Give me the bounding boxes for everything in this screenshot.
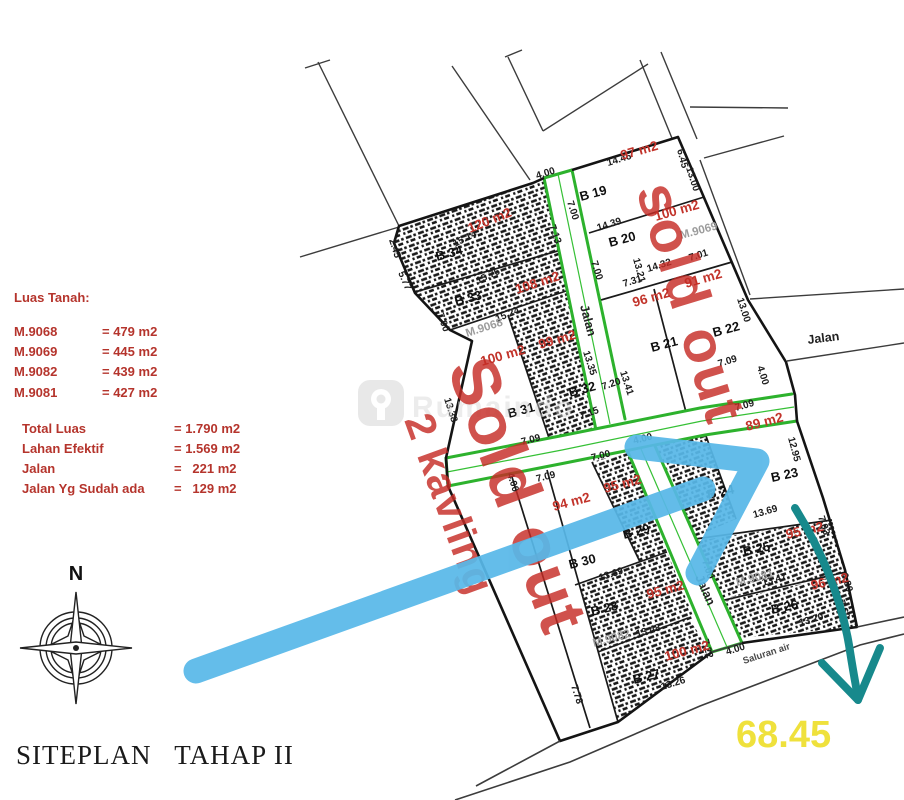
- parcel-area: = 479 m2: [102, 322, 157, 342]
- parcel-id: M.9082: [14, 362, 102, 382]
- legend-row: Lahan Efektif = 1.569 m2: [22, 439, 240, 459]
- compass-north-label: N: [69, 563, 83, 585]
- measurement-text: 68.45: [736, 714, 831, 756]
- legend-row: Jalan Yg Sudah ada = 129 m2: [22, 479, 240, 499]
- parcel-id: M.9069: [14, 342, 102, 362]
- legend-row: M.9069 = 445 m2: [14, 342, 240, 362]
- legend-row: Jalan = 221 m2: [22, 459, 240, 479]
- legend-row: M.9082 = 439 m2: [14, 362, 240, 382]
- parcel-area: = 427 m2: [102, 383, 157, 403]
- legend-row: M.9081 = 427 m2: [14, 383, 240, 403]
- compass-rose: N: [20, 563, 132, 704]
- parcel-id: M.9068: [14, 322, 102, 342]
- road-label-saluran-air: Saluran air: [742, 641, 792, 667]
- summary-value: = 221 m2: [174, 459, 237, 479]
- summary-value: = 1.569 m2: [174, 439, 240, 459]
- legend-heading: Luas Tanah:: [14, 288, 240, 308]
- siteplan-page: 15.14 2.45 5.77 15.76 7.13 7.00 15.24 7.…: [0, 0, 904, 800]
- legend-summary: Total Luas = 1.790 m2 Lahan Efektif = 1.…: [22, 419, 240, 500]
- legend-row: Total Luas = 1.790 m2: [22, 419, 240, 439]
- land-area-legend: Luas Tanah: M.9068 = 479 m2 M.9069 = 445…: [14, 288, 240, 499]
- summary-label: Total Luas: [22, 419, 174, 439]
- parcel-area: = 445 m2: [102, 342, 157, 362]
- legend-row: M.9068 = 479 m2: [14, 322, 240, 342]
- summary-label: Jalan: [22, 459, 174, 479]
- parcel-id: M.9081: [14, 383, 102, 403]
- summary-value: = 1.790 m2: [174, 419, 240, 439]
- parcel-area: = 439 m2: [102, 362, 157, 382]
- summary-value: = 129 m2: [174, 479, 237, 499]
- road-label-jalan-existing: Jalan: [807, 329, 840, 347]
- page-title: SITEPLAN TAHAP II: [16, 740, 294, 771]
- summary-label: Jalan Yg Sudah ada: [22, 479, 174, 499]
- summary-label: Lahan Efektif: [22, 439, 174, 459]
